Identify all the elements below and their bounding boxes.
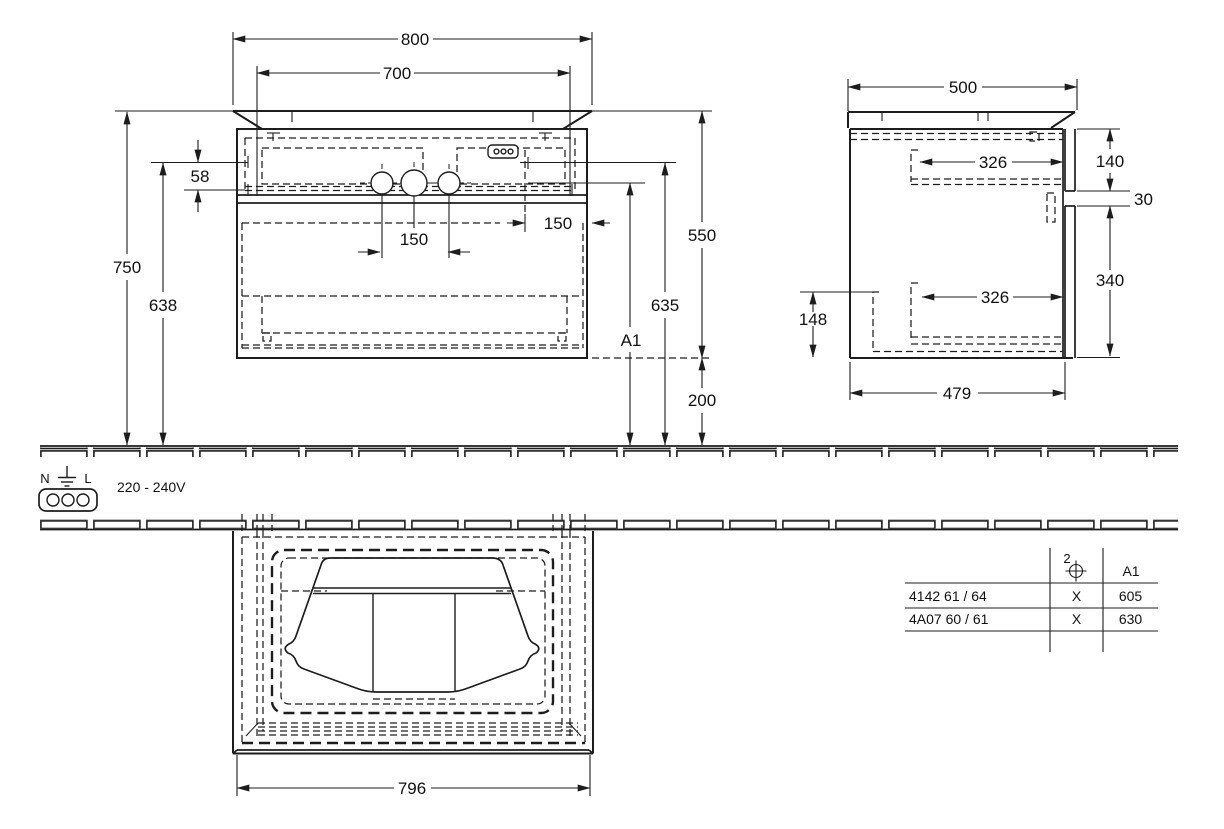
vanity-installation-drawing: 800 700 750 638 58 150 15 [0,0,1224,829]
wall-hatch-band [40,519,1178,530]
washbasin-top-front [233,111,592,129]
socket-symbol-icon [39,489,97,511]
voltage-label: 220 - 240V [117,479,186,495]
table-row: 4142 61 / 64 X 605 [909,588,1142,604]
a1-value: 630 [1119,611,1143,627]
power-supply-legend: N L 220 - 240V [39,466,186,511]
side-view: 500 326 140 30 340 326 148 [799,78,1153,403]
table-row: 4A07 60 / 61 X 630 [909,611,1142,627]
dim-326-top: 326 [979,153,1007,172]
dim-a1: A1 [621,331,642,350]
dim-700: 700 [383,64,411,83]
washbasin-plan [285,558,539,692]
side-dimensions: 500 326 140 30 340 326 148 [799,78,1153,403]
plan-view: 796 [233,514,593,798]
mark-x: X [1072,588,1082,604]
plan-hidden-lines [242,514,585,743]
basin-rim-hidden [272,550,553,713]
side-hidden-lines [850,132,1063,352]
dim-479: 479 [943,384,971,403]
earth-ground-icon [58,466,76,486]
dim-796: 796 [398,779,426,798]
fixing-qty: 2 [1063,551,1070,566]
dim-635: 635 [651,296,679,315]
socket-outlet-icon [488,145,518,158]
neutral-label: N [40,471,49,486]
model-number: 4A07 60 / 61 [909,611,989,627]
cabinet-plan-outline [233,531,593,754]
line-label: L [84,471,91,486]
dim-140: 140 [1096,152,1124,171]
dim-340: 340 [1096,271,1124,290]
model-number: 4142 61 / 64 [909,588,987,604]
dim-550: 550 [688,226,716,245]
dim-150-left: 150 [400,230,428,249]
dim-800: 800 [401,30,429,49]
front-view: 800 700 750 638 58 150 15 [113,30,716,445]
floor-hatch-band [40,446,1178,457]
dim-200: 200 [688,391,716,410]
spec-table: 2 A1 4142 61 / 64 X 605 4A07 60 / 61 X 6… [905,548,1158,652]
cabinet-side-outline [850,129,1075,358]
dim-500: 500 [949,78,977,97]
plan-dimensions: 796 [237,755,590,798]
dim-148: 148 [799,310,827,329]
a1-value: 605 [1119,588,1143,604]
dim-150-right: 150 [544,214,572,233]
washbasin-top-side [848,112,1075,128]
front-dimensions: 800 700 750 638 58 150 15 [113,30,716,445]
dim-30: 30 [1134,190,1153,209]
table-col-a1: A1 [1122,563,1139,579]
dim-58: 58 [191,167,210,186]
technical-drawing-page: 800 700 750 638 58 150 15 [0,0,1224,829]
dim-326-bottom: 326 [981,288,1009,307]
mark-x: X [1072,611,1082,627]
dim-638: 638 [149,296,177,315]
dim-750: 750 [113,258,141,277]
